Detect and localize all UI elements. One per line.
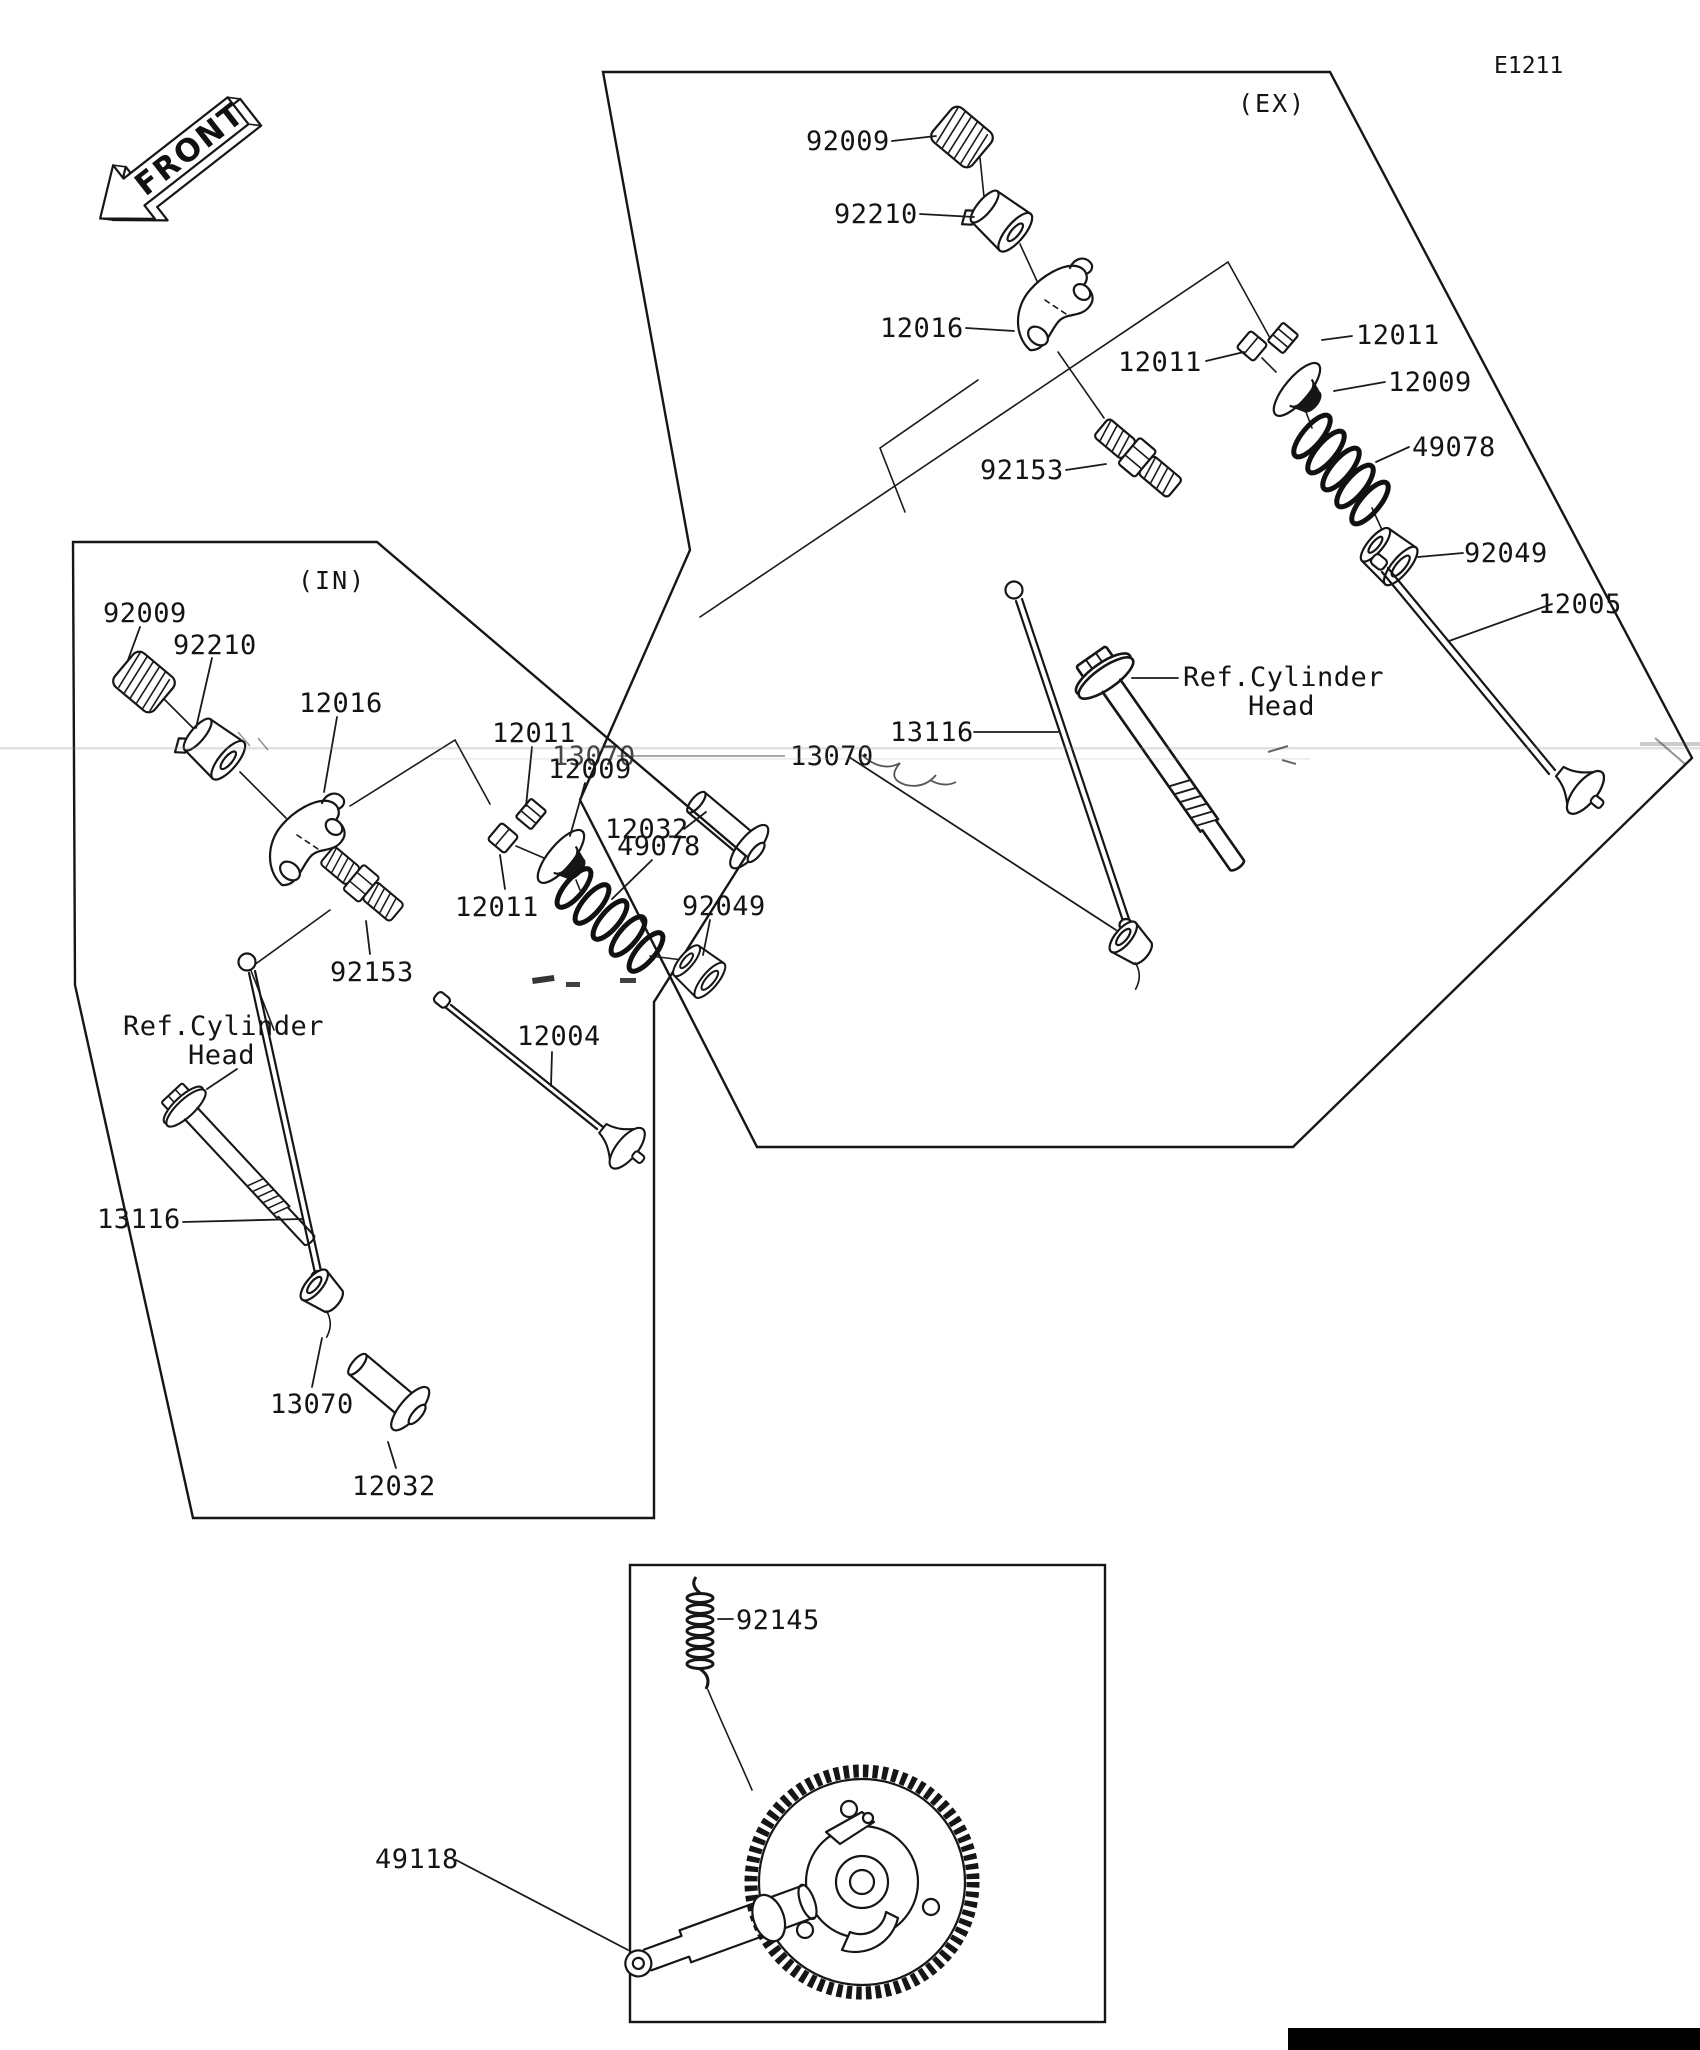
label-92153-ex: 92153 — [980, 455, 1064, 486]
part-49118-camshaft — [619, 1771, 973, 1993]
label-92145: 92145 — [736, 1605, 820, 1636]
part-12004-intake-valve — [432, 991, 658, 1180]
in-box: (IN) — [73, 542, 766, 1518]
label-13070-in: 13070 — [270, 1389, 354, 1420]
part-13116-push-rod-ex — [1006, 582, 1133, 932]
in-box-tag: (IN) — [298, 566, 366, 595]
label-12005-ex: 12005 — [1538, 589, 1622, 620]
part-13070-tappet-ex — [1097, 917, 1169, 989]
label-92009-in: 92009 — [103, 598, 187, 629]
part-12009-retainer-ex — [1267, 356, 1338, 430]
label-ref-head-in: Head — [188, 1040, 255, 1071]
part-12011-keeper-nut-ex — [1268, 322, 1299, 353]
part-92009-adjusting-screw-ex — [928, 103, 996, 170]
scan-edge-bar — [1288, 2028, 1700, 2050]
label-92153-in: 92153 — [330, 957, 414, 988]
label-12032-in: 12032 — [352, 1471, 436, 1502]
part-92210-adjuster-ex — [957, 180, 1037, 259]
label-12004-in: 12004 — [517, 1021, 601, 1052]
part-12016-rocker-arm-ex — [1018, 259, 1093, 350]
label-92049-ex: 92049 — [1464, 538, 1548, 569]
part-92049-stem-seal-in — [667, 939, 730, 1002]
label-ref-cylinder-in: Ref.Cylinder — [123, 1011, 324, 1042]
part-92153-stud-ex — [1090, 414, 1185, 502]
label-92210-ex: 92210 — [834, 199, 918, 230]
page-code: E1211 — [1494, 53, 1563, 79]
valve-camshaft-exploded-diagram: E1211 FRONT (EX) — [0, 0, 1700, 2050]
label-12016-ex: 12016 — [880, 313, 964, 344]
label-49078-in: 49078 — [617, 831, 701, 862]
label-92049-in: 92049 — [682, 891, 766, 922]
part-49078-valve-spring-in — [552, 864, 669, 976]
part-12011-keeper-nut-in — [516, 798, 547, 829]
label-13116-in: 13116 — [97, 1204, 181, 1235]
part-49078-valve-spring-ex — [1288, 410, 1394, 529]
label-ref-cylinder-ex: Ref.Cylinder — [1183, 662, 1384, 693]
label-12011-bottom-in: 12011 — [455, 892, 539, 923]
label-13070-ex: 13070 — [790, 741, 874, 772]
part-92153-stud-in — [317, 842, 408, 925]
label-12011-right-ex: 12011 — [1356, 320, 1440, 351]
front-arrow-icon: FRONT — [79, 78, 271, 252]
part-12011-keeper-in — [488, 823, 519, 854]
label-92009-ex: 92009 — [806, 126, 890, 157]
part-92009-adjusting-screw-in — [110, 648, 178, 715]
ex-box: (EX) — [580, 72, 1692, 1147]
leader-lines-ex — [684, 136, 1552, 930]
label-12016-in: 12016 — [299, 688, 383, 719]
label-ref-head-ex: Head — [1248, 691, 1315, 722]
parts-diagram-page: E1211 FRONT (EX) — [0, 0, 1700, 2050]
label-12011-left-ex: 12011 — [1118, 347, 1202, 378]
part-12011-keeper-ex — [1237, 331, 1268, 362]
part-13070-tappet-in — [288, 1265, 360, 1337]
label-13116-ex: 13116 — [890, 717, 974, 748]
label-49078-ex: 49078 — [1412, 432, 1496, 463]
label-12009-ex: 12009 — [1388, 367, 1472, 398]
front-label: FRONT — [128, 96, 251, 203]
label-92210-in: 92210 — [173, 630, 257, 661]
camshaft-box: 92145 49118 — [375, 1565, 1105, 2022]
ex-frame-notch-lines — [700, 158, 1383, 617]
ex-box-tag: (EX) — [1238, 89, 1306, 118]
label-49118: 49118 — [375, 1844, 459, 1875]
